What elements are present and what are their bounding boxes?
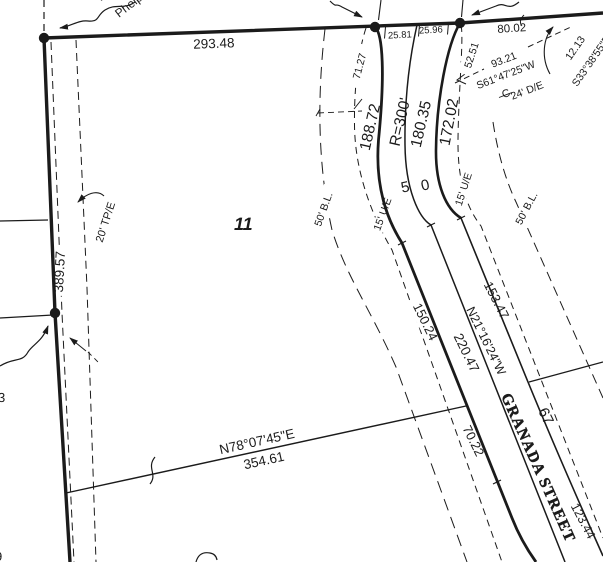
svg-text:389.57: 389.57 [51,251,68,293]
svg-text:25.81: 25.81 [388,29,412,41]
svg-text:25.96: 25.96 [419,24,443,36]
svg-text:11: 11 [234,214,253,234]
svg-text:3: 3 [0,390,5,405]
svg-text:80.02: 80.02 [497,22,527,36]
svg-text:9: 9 [0,549,2,562]
svg-text:293.48: 293.48 [193,35,235,51]
